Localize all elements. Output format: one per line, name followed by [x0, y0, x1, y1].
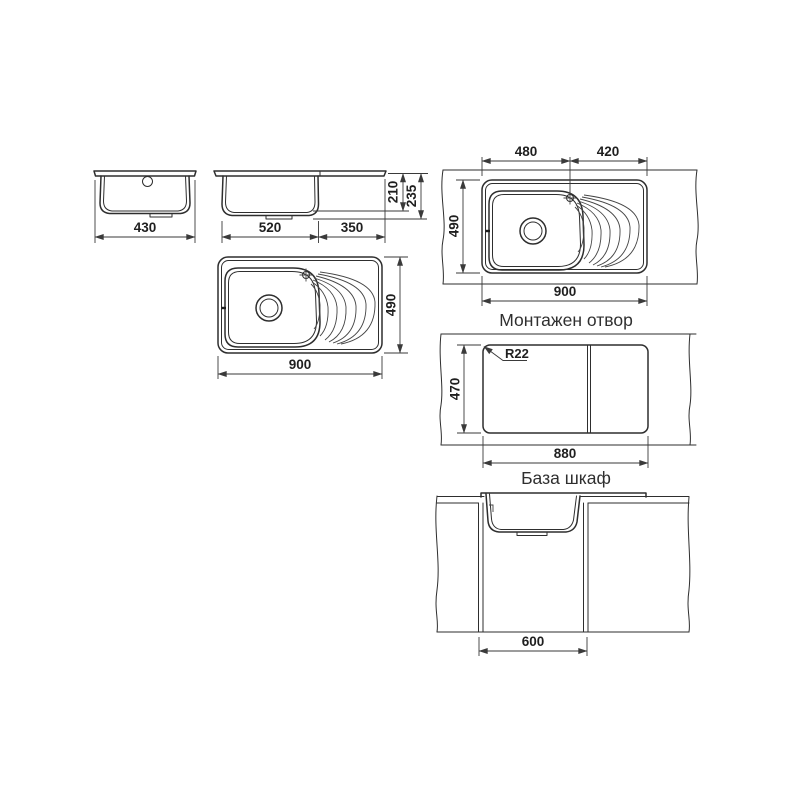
dim-label-900-plan: 900	[289, 357, 312, 372]
dim-label-900-countertop: 900	[554, 284, 577, 299]
side-view: 520 350 210 235	[214, 171, 428, 243]
cabinet-break-left	[436, 496, 438, 632]
dim-label-600: 600	[522, 634, 545, 649]
mounted-sink-outer-rim	[482, 180, 647, 273]
dim-label-420: 420	[597, 144, 620, 159]
plan-inner-rim	[222, 261, 379, 350]
mounted-bowl-inner	[493, 195, 581, 267]
caption-base-cabinet: База шкаф	[521, 468, 611, 488]
mounted-tap-hole-crosshair	[564, 192, 577, 205]
cutout-divider-lines	[588, 345, 591, 433]
side-bowl-inner	[226, 176, 316, 213]
sink-technical-drawing-page: 430 520 350 210 235	[0, 0, 800, 800]
drain-inner-circle	[260, 299, 278, 317]
front-flange-outline	[94, 171, 196, 176]
cutout-break-right	[689, 334, 691, 445]
dim-label-210: 210	[386, 181, 401, 204]
dim-label-470: 470	[448, 378, 463, 401]
plan-view: 490 900	[218, 257, 408, 379]
technical-drawing-canvas: 430 520 350 210 235	[0, 0, 800, 800]
front-bowl-inner	[104, 176, 187, 211]
countertop-break-left	[442, 170, 444, 284]
side-flange-outline	[214, 171, 386, 176]
dim-label-235: 235	[404, 184, 419, 207]
cutout-break-left	[440, 334, 442, 445]
front-view: 430	[94, 171, 196, 243]
tap-hole-crosshair	[300, 269, 313, 282]
overflow-hole	[143, 177, 153, 187]
dim-label-350: 350	[341, 220, 364, 235]
plan-drainer-grooves	[311, 272, 375, 344]
cutout-view: R22 470 880 База шкаф	[440, 334, 696, 488]
countertop-view: 480 420 490 900 Монтажен отвор	[442, 144, 698, 330]
dim-label-480: 480	[515, 144, 538, 159]
cutout-band-edges	[441, 334, 696, 445]
cabinet-break-right	[688, 497, 690, 632]
radius-label-r22: R22	[505, 346, 529, 361]
side-bowl-outer	[222, 176, 319, 216]
cabinet-section-view: 600	[436, 493, 690, 656]
section-bowl-outer	[486, 494, 580, 532]
front-bowl-outer	[100, 176, 190, 214]
dim-label-490-countertop: 490	[447, 215, 462, 238]
cabinet-side-walls	[479, 503, 589, 632]
mounted-drain-inner-circle	[524, 222, 542, 240]
countertop-extension-lines-top	[482, 157, 647, 193]
dim-label-430: 430	[134, 220, 157, 235]
plan-bowl-inner	[229, 272, 317, 344]
caption-mounting-hole: Монтажен отвор	[499, 310, 633, 330]
countertop-break-right	[696, 170, 698, 284]
dim-label-520: 520	[259, 220, 282, 235]
mounted-drainer-grooves	[575, 195, 639, 267]
dim-label-880: 880	[554, 446, 577, 461]
section-bowl-inner	[490, 494, 577, 530]
dim-label-490-plan: 490	[384, 294, 399, 317]
